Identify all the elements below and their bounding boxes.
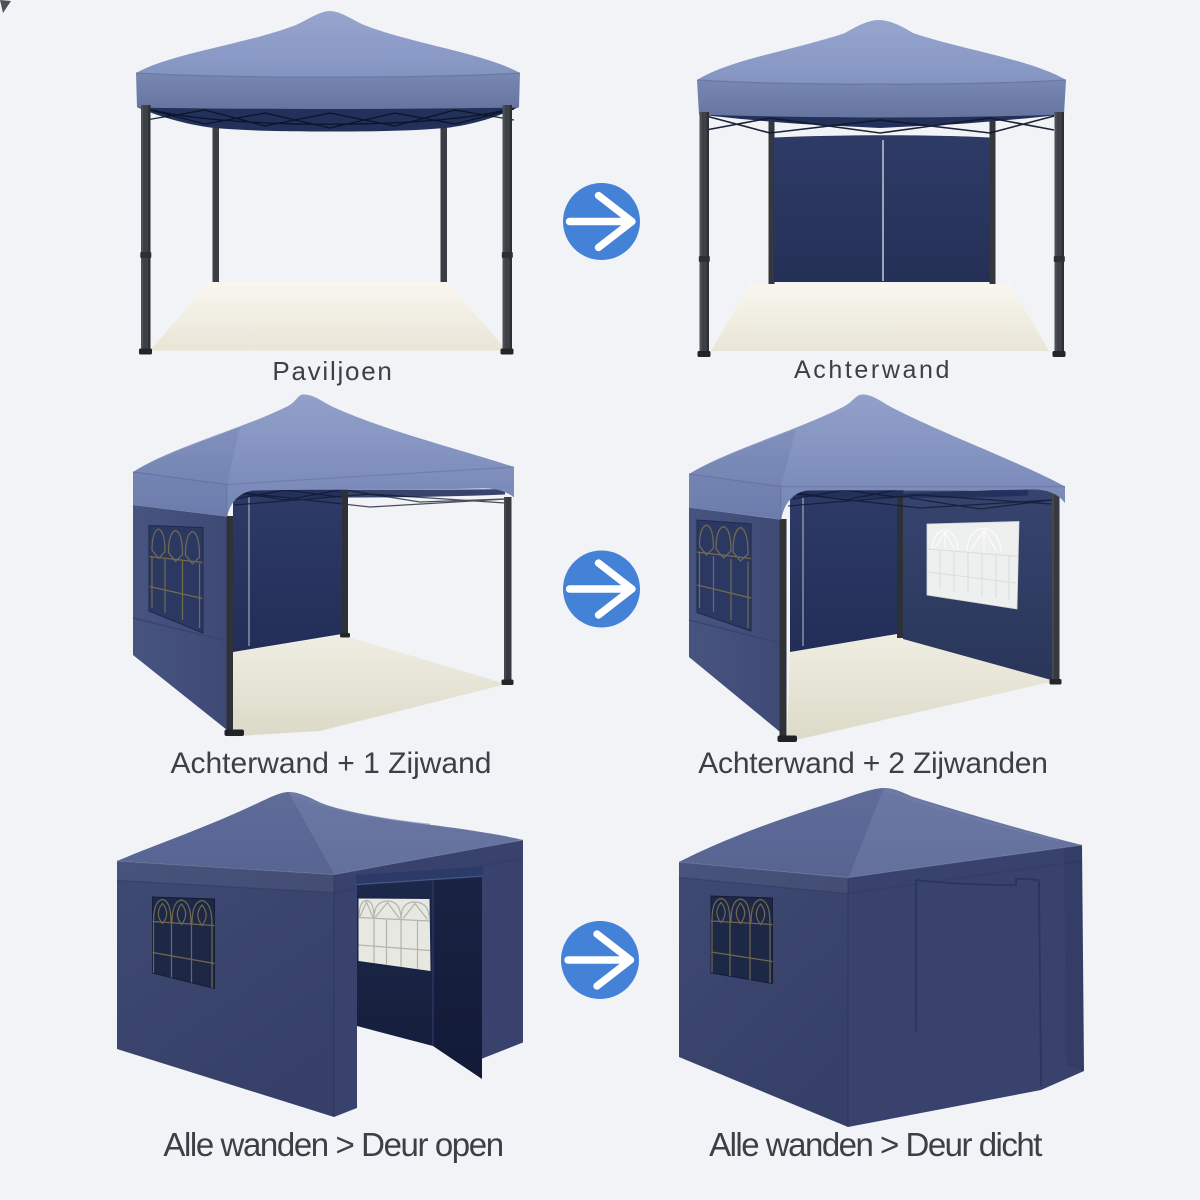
svg-text:Alle wanden > Deur open: Alle wanden > Deur open — [163, 1126, 502, 1163]
svg-text:Paviljoen: Paviljoen — [272, 356, 393, 386]
svg-text:Achterwand + 1 Zijwand: Achterwand + 1 Zijwand — [170, 747, 491, 780]
svg-text:Achterwand + 2 Zijwanden: Achterwand + 2 Zijwanden — [698, 747, 1048, 780]
svg-text:Alle wanden > Deur dicht: Alle wanden > Deur dicht — [709, 1126, 1042, 1163]
svg-text:Achterwand: Achterwand — [794, 356, 952, 384]
